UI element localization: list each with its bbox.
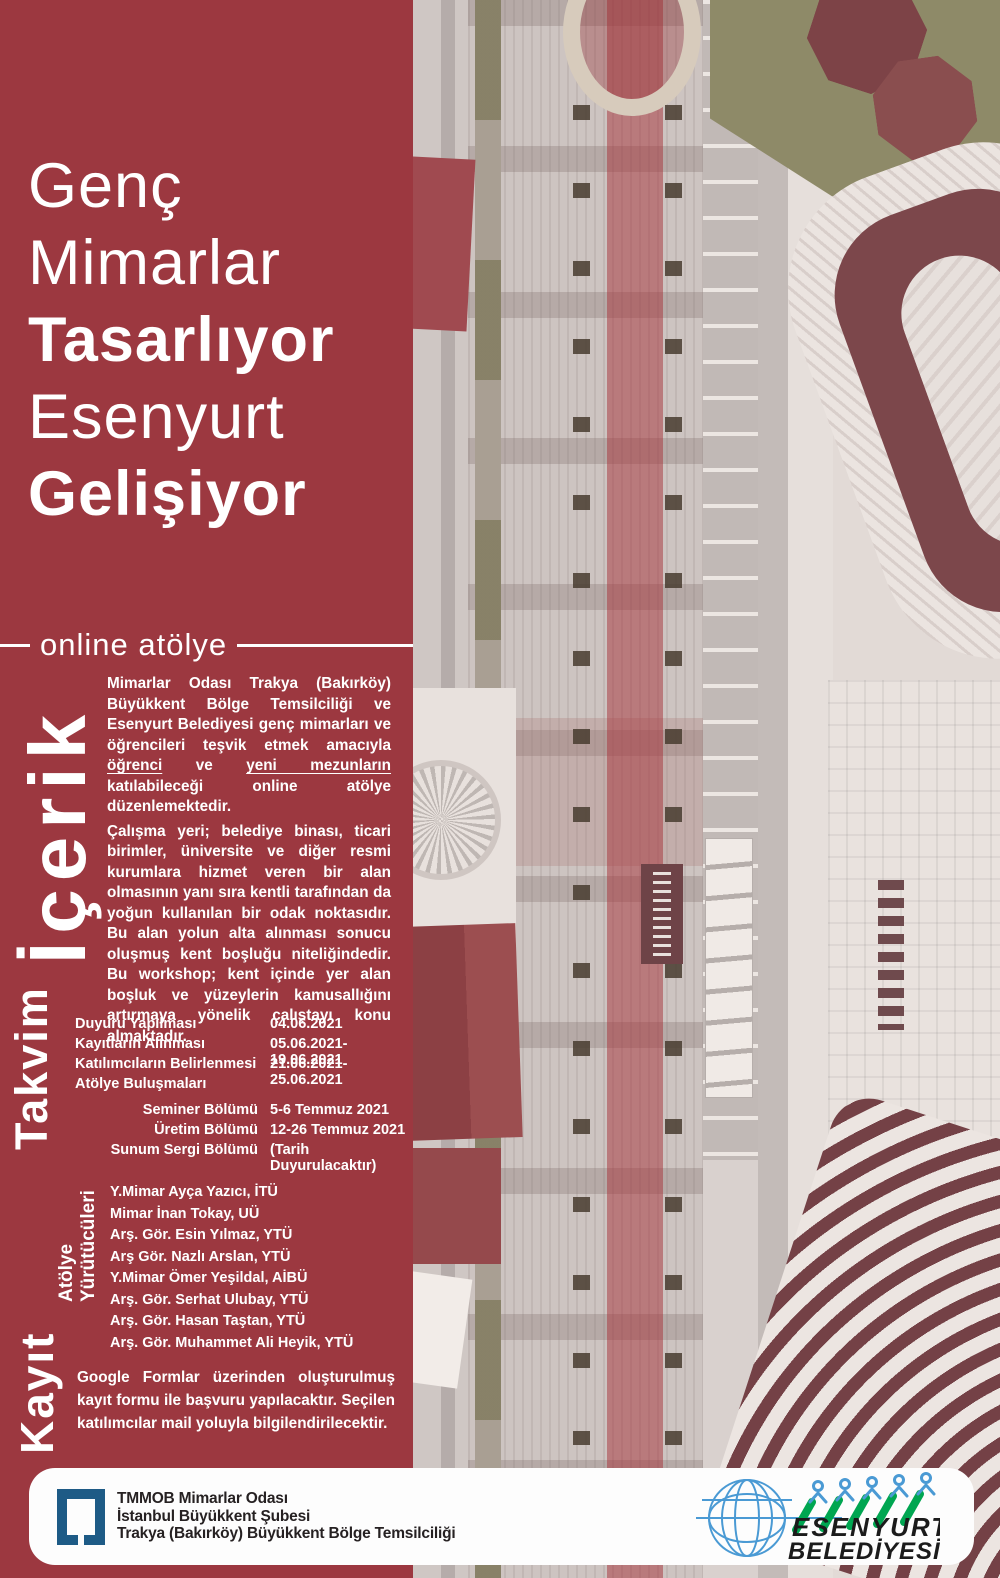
facilitator-list: Y.Mimar Ayça Yazıcı, İTÜ Mimar İnan Toka…: [110, 1182, 353, 1354]
photo-metro-entrance: [641, 864, 683, 964]
photo-red-axis-band: [607, 0, 663, 1578]
icerik-paragraph-2: Çalışma yeri; belediye binası, ticari bi…: [107, 822, 391, 1048]
section-heading-kayit: Kayıt: [10, 1326, 64, 1454]
tag-dash-right: [237, 644, 413, 647]
kayit-paragraph: Google Formlar üzerinden oluşturulmuş ka…: [77, 1366, 395, 1435]
tmmob-block: TMMOB Mimarlar Odası İstanbul Büyükkent …: [57, 1489, 456, 1545]
section-heading-takvim: Takvim: [6, 1000, 58, 1150]
schedule-row: Seminer Bölümü 5-6 Temmuz 2021: [75, 1102, 410, 1122]
schedule-row: Atölye Buluşmaları: [75, 1076, 410, 1096]
schedule-table: Duyuru Yapılması 04.06.2021 Kayıtların A…: [75, 1016, 410, 1162]
title-line-4: Esenyurt: [28, 379, 334, 456]
tmmob-line-1: TMMOB Mimarlar Odası: [117, 1490, 456, 1508]
schedule-value: (Tarih Duyurulacaktır): [270, 1142, 410, 1162]
esenyurt-belediyesi-logo: ESENYURT BELEDİYESİ: [692, 1472, 940, 1562]
schedule-label: Sunum Sergi Bölümü: [75, 1142, 270, 1162]
facilitator-item: Y.Mimar Ayça Yazıcı, İTÜ: [110, 1182, 353, 1204]
poster-title: Genç Mimarlar Tasarlıyor Esenyurt Gelişi…: [28, 148, 334, 533]
icerik-p1-after: katılabileceği online atölye düzenlemekt…: [107, 778, 391, 816]
schedule-row: Sunum Sergi Bölümü (Tarih Duyurulacaktır…: [75, 1142, 410, 1162]
facilitator-item: Arş. Gör. Muhammet Ali Heyik, YTÜ: [110, 1333, 353, 1355]
schedule-value: 04.06.2021: [270, 1016, 410, 1036]
tag-dash-left: [0, 644, 30, 647]
schedule-label: Atölye Buluşmaları: [75, 1076, 270, 1096]
schedule-value: 12-26 Temmuz 2021: [270, 1122, 410, 1142]
photo-parking-canopies: [705, 838, 753, 1098]
title-line-3: Tasarlıyor: [28, 302, 334, 379]
yurutuculeri-heading-line-1: Atölye: [56, 1180, 78, 1302]
schedule-label: Katılımcıların Belirlenmesi: [75, 1056, 270, 1076]
facilitator-item: Arş. Gör. Hasan Taştan, YTÜ: [110, 1311, 353, 1333]
schedule-value: [270, 1076, 410, 1096]
icerik-paragraph-1: Mimarlar Odası Trakya (Bakırköy) Büyükke…: [107, 674, 391, 818]
photo-rooftop-units: [878, 880, 904, 1030]
photo-grid-building: [828, 680, 1000, 1160]
photo-red-roof-small: [413, 1148, 501, 1264]
facilitator-item: Arş Gör. Nazlı Arslan, YTÜ: [110, 1247, 353, 1269]
schedule-row: Kayıtların Alınması 05.06.2021-19.06.202…: [75, 1036, 410, 1056]
icerik-p1-underline-1: öğrenci: [107, 757, 162, 774]
schedule-value: 5-6 Temmuz 2021: [270, 1102, 410, 1122]
section-heading-icerik: İçerik: [12, 672, 104, 964]
facilitator-item: Mimar İnan Tokay, UÜ: [110, 1204, 353, 1226]
photo-red-roof-large: [413, 923, 523, 1141]
esenyurt-logo-text: ESENYURT BELEDİYESİ: [788, 1512, 940, 1562]
schedule-row: Üretim Bölümü 12-26 Temmuz 2021: [75, 1122, 410, 1142]
workshop-tag: online atölye: [0, 627, 413, 663]
schedule-value: 21.06.2021-25.06.2021: [270, 1056, 410, 1076]
title-line-1: Genç: [28, 148, 334, 225]
facilitator-item: Y.Mimar Ömer Yeşildal, AİBÜ: [110, 1268, 353, 1290]
schedule-label: Kayıtların Alınması: [75, 1036, 270, 1056]
tmmob-line-2: İstanbul Büyükkent Şubesi: [117, 1508, 456, 1526]
section-heading-yurutuculeri: Atölye Yürütücüleri: [56, 1180, 100, 1302]
esenyurt-logo-line-2: BELEDİYESİ: [788, 1538, 940, 1562]
tmmob-logo-icon: [57, 1489, 105, 1545]
photo-tree-row-left: [573, 105, 590, 1445]
photo-curved-tower-core: [885, 239, 1000, 562]
schedule-value: 05.06.2021-19.06.2021: [270, 1036, 410, 1056]
yurutuculeri-heading-line-2: Yürütücüleri: [78, 1180, 100, 1302]
schedule-label: Seminer Bölümü: [75, 1102, 270, 1122]
tmmob-line-3: Trakya (Bakırköy) Büyükkent Bölge Temsil…: [117, 1525, 456, 1543]
facilitator-item: Arş. Gör. Serhat Ulubay, YTÜ: [110, 1290, 353, 1312]
schedule-row: Duyuru Yapılması 04.06.2021: [75, 1016, 410, 1036]
photo-metro-steps: [653, 872, 671, 956]
photo-red-roof-top-left: [413, 156, 475, 331]
facilitator-item: Arş. Gör. Esin Yılmaz, YTÜ: [110, 1225, 353, 1247]
title-line-5: Gelişiyor: [28, 456, 334, 533]
workshop-poster: Genç Mimarlar Tasarlıyor Esenyurt Gelişi…: [0, 0, 1000, 1578]
title-line-2: Mimarlar: [28, 225, 334, 302]
tmmob-text: TMMOB Mimarlar Odası İstanbul Büyükkent …: [117, 1490, 456, 1543]
photo-tree-row-right: [665, 105, 682, 1445]
footer-card: TMMOB Mimarlar Odası İstanbul Büyükkent …: [29, 1468, 974, 1565]
schedule-label: Duyuru Yapılması: [75, 1016, 270, 1036]
tag-label: online atölye: [40, 627, 227, 663]
icerik-p1-underline-2: yeni mezunların: [246, 757, 391, 774]
schedule-row: Katılımcıların Belirlenmesi 21.06.2021-2…: [75, 1056, 410, 1076]
icerik-paragraphs: Mimarlar Odası Trakya (Bakırköy) Büyükke…: [107, 674, 391, 1047]
aerial-photo: [413, 0, 1000, 1578]
icerik-p1-mid: ve: [162, 757, 246, 774]
schedule-label: Üretim Bölümü: [75, 1122, 270, 1142]
icerik-p1-text: Mimarlar Odası Trakya (Bakırköy) Büyükke…: [107, 675, 391, 754]
